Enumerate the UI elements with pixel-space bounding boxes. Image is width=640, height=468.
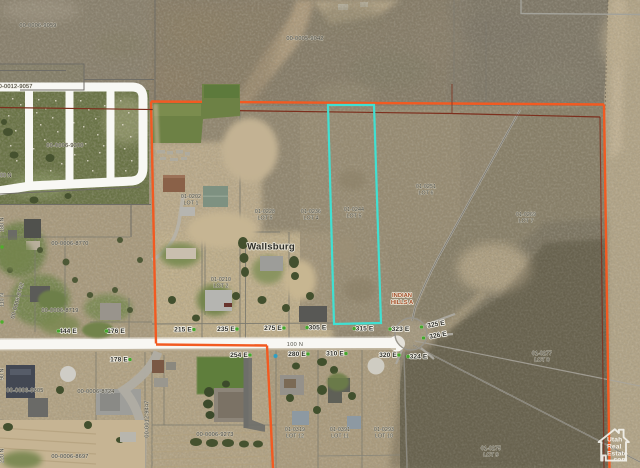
svg-text:90 N: 90 N bbox=[0, 369, 6, 380]
svg-text:LOT 4: LOT 4 bbox=[303, 216, 318, 222]
svg-text:00-0006-9305: 00-0006-9305 bbox=[6, 388, 43, 394]
svg-text:00-0012-9057: 00-0012-9057 bbox=[0, 84, 33, 90]
svg-text:444 E: 444 E bbox=[59, 328, 77, 335]
svg-text:01-0210: 01-0210 bbox=[211, 277, 231, 283]
svg-text:315 E: 315 E bbox=[356, 326, 374, 333]
svg-text:.com: .com bbox=[612, 457, 628, 464]
svg-text:110 N: 110 N bbox=[0, 293, 6, 307]
svg-text:323 E: 323 E bbox=[392, 326, 410, 333]
svg-text:LOT 8: LOT 8 bbox=[534, 358, 549, 364]
svg-text:180 N: 180 N bbox=[0, 218, 6, 232]
svg-text:LOT 5: LOT 5 bbox=[257, 216, 272, 222]
svg-text:275 E: 275 E bbox=[264, 325, 282, 332]
svg-text:00-0006-8697: 00-0006-8697 bbox=[51, 454, 88, 460]
svg-text:00-0006-8719: 00-0006-8719 bbox=[41, 308, 78, 314]
svg-text:00-0005-9042: 00-0005-9042 bbox=[286, 36, 323, 42]
svg-text:220 N: 220 N bbox=[0, 449, 6, 463]
svg-text:200 N: 200 N bbox=[0, 173, 11, 179]
svg-text:LOT 2: LOT 2 bbox=[213, 284, 228, 290]
svg-text:305 E: 305 E bbox=[309, 325, 327, 332]
svg-text:100 N: 100 N bbox=[287, 342, 303, 348]
svg-text:LOT 11: LOT 11 bbox=[331, 434, 349, 440]
svg-text:254 E: 254 E bbox=[230, 352, 248, 359]
svg-text:00-0006-8724: 00-0006-8724 bbox=[77, 389, 114, 395]
svg-text:00-0012-9447: 00-0012-9447 bbox=[145, 400, 151, 437]
svg-text:01-0319: 01-0319 bbox=[285, 427, 305, 433]
svg-text:235 E: 235 E bbox=[217, 326, 235, 333]
svg-text:01-0251: 01-0251 bbox=[416, 184, 436, 190]
svg-text:01-0228: 01-0228 bbox=[255, 209, 275, 215]
svg-text:01-0244: 01-0244 bbox=[344, 207, 364, 213]
svg-text:Real: Real bbox=[607, 444, 622, 451]
svg-text:LOT 6: LOT 6 bbox=[418, 191, 433, 197]
svg-text:280 E: 280 E bbox=[288, 351, 306, 358]
svg-text:310 E: 310 E bbox=[326, 351, 344, 358]
svg-text:01-0236: 01-0236 bbox=[301, 209, 321, 215]
svg-text:Wallsburg: Wallsburg bbox=[247, 242, 295, 253]
svg-text:00-0006-9273: 00-0006-9273 bbox=[196, 432, 233, 438]
svg-text:INDIAN: INDIAN bbox=[392, 293, 412, 299]
svg-text:176 E: 176 E bbox=[107, 328, 125, 335]
svg-text:HILLS A: HILLS A bbox=[391, 300, 414, 306]
svg-text:01-0269: 01-0269 bbox=[516, 212, 536, 218]
svg-text:LOT 9: LOT 9 bbox=[483, 453, 498, 459]
svg-text:LOT 1: LOT 1 bbox=[183, 201, 198, 207]
svg-text:LOT 5: LOT 5 bbox=[346, 214, 361, 220]
svg-text:01-0391: 01-0391 bbox=[330, 427, 350, 433]
svg-text:01-0202: 01-0202 bbox=[181, 194, 201, 200]
svg-text:01-0293: 01-0293 bbox=[374, 427, 394, 433]
svg-text:320 E: 320 E bbox=[379, 352, 397, 359]
svg-text:LOT 7: LOT 7 bbox=[518, 219, 533, 225]
svg-text:01-0277: 01-0277 bbox=[532, 351, 552, 357]
svg-text:324 E: 324 E bbox=[410, 354, 428, 361]
svg-text:00-0006-8770: 00-0006-8770 bbox=[51, 241, 88, 247]
svg-text:01-0275: 01-0275 bbox=[481, 446, 501, 452]
svg-text:Utah: Utah bbox=[607, 437, 622, 444]
svg-text:00-0006-9059: 00-0006-9059 bbox=[19, 23, 56, 29]
svg-text:215 E: 215 E bbox=[174, 327, 192, 334]
svg-text:00-0006-9200: 00-0006-9200 bbox=[46, 143, 83, 149]
svg-text:LOT 10: LOT 10 bbox=[375, 434, 393, 440]
svg-text:LOT 12: LOT 12 bbox=[286, 434, 304, 440]
svg-text:178 E: 178 E bbox=[110, 357, 128, 364]
